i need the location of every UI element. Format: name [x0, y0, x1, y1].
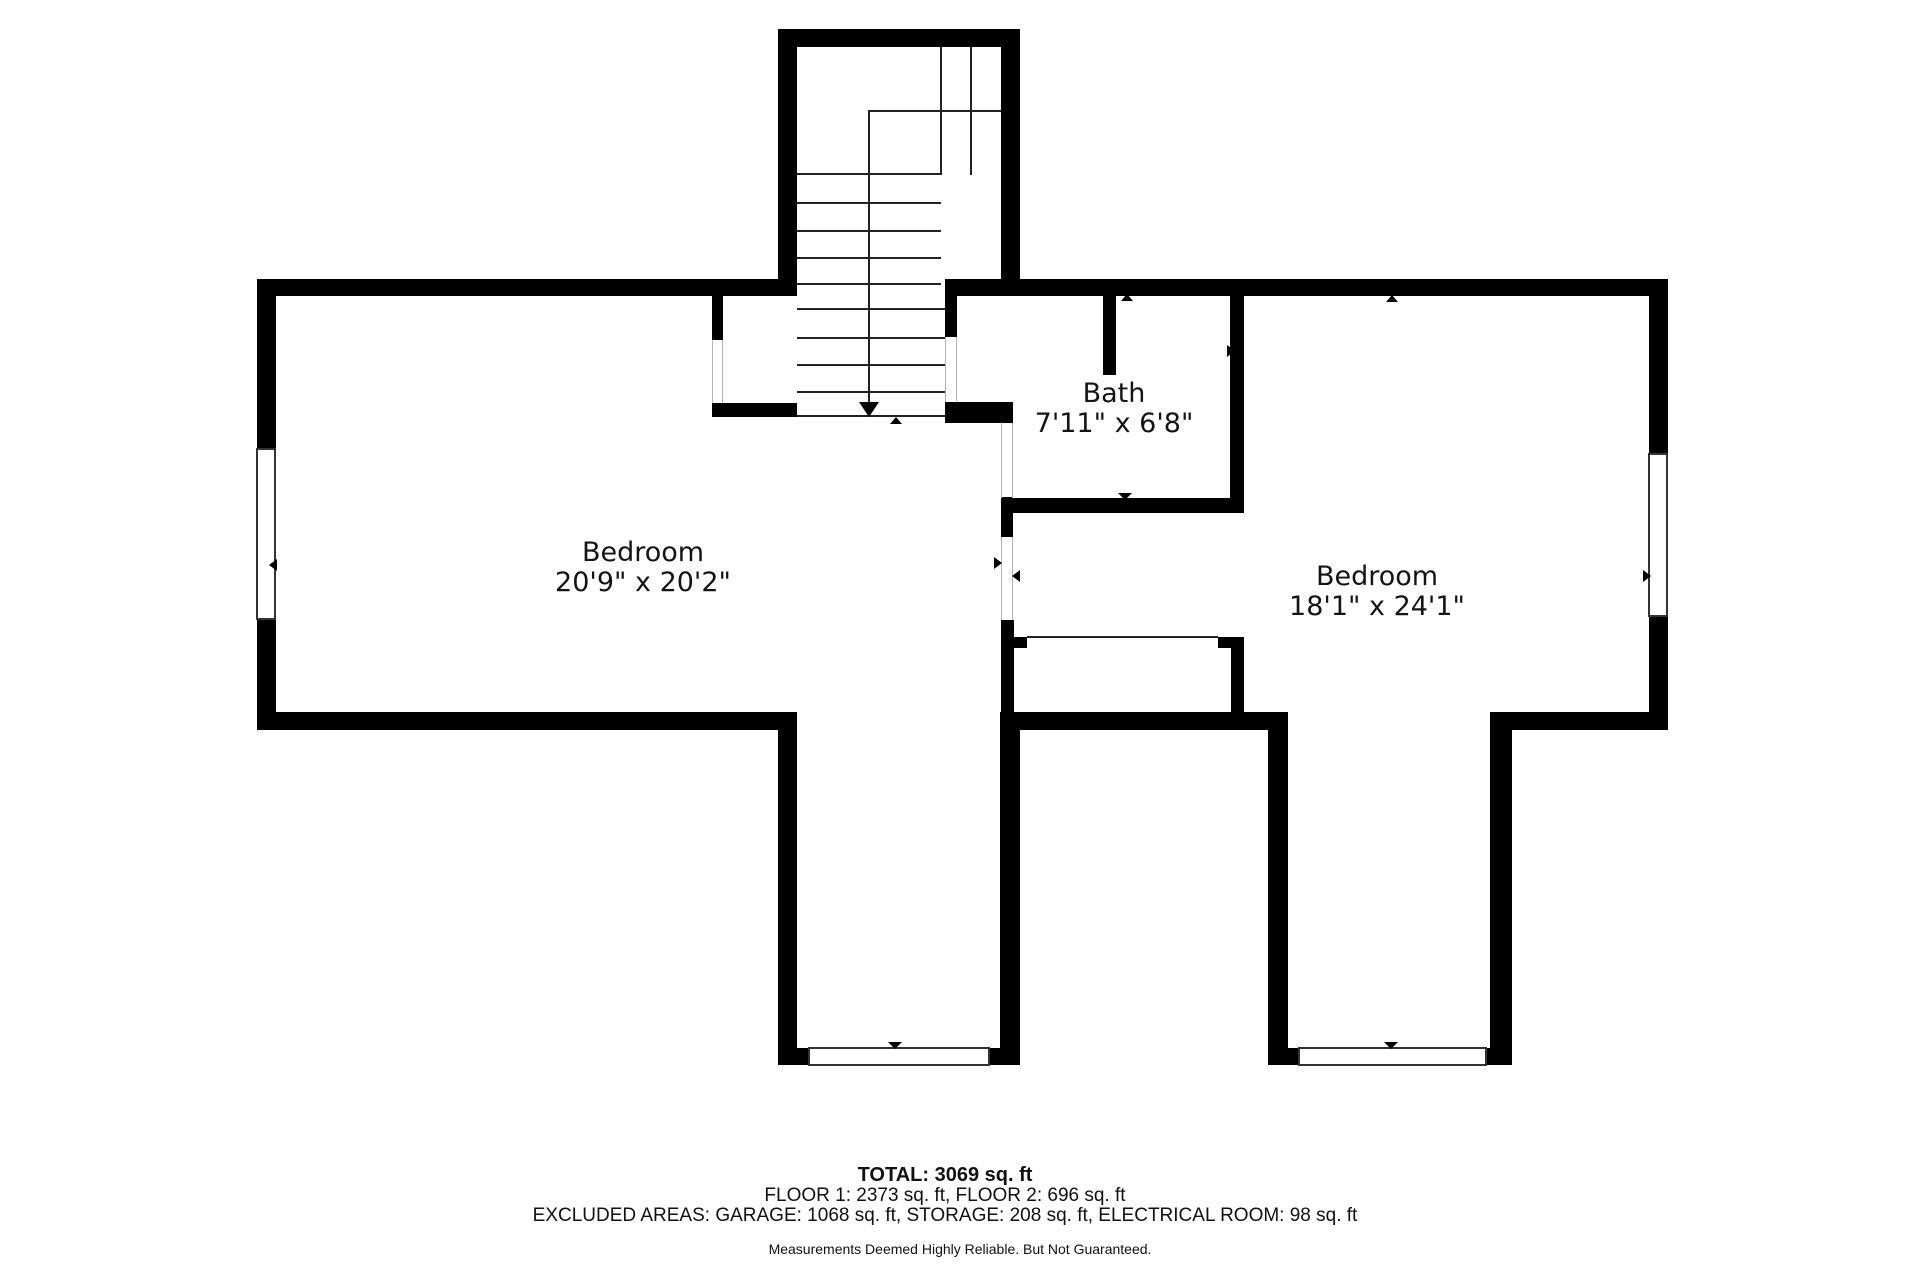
wall: [1490, 712, 1668, 730]
direction-arrow: [269, 559, 277, 571]
direction-arrow: [1118, 493, 1132, 500]
wall: [945, 279, 1668, 296]
direction-arrow: [888, 1042, 902, 1049]
door-opening: [1001, 537, 1002, 620]
direction-arrow: [1643, 570, 1651, 582]
wall: [1268, 712, 1288, 1065]
window: [1648, 453, 1668, 617]
floor-areas: FLOOR 1: 2373 sq. ft, FLOOR 2: 696 sq. f…: [0, 1186, 1890, 1206]
wall: [1013, 637, 1027, 648]
direction-arrow: [890, 417, 902, 424]
room-label-bedroom-right: Bedroom 18'1" x 24'1": [1289, 562, 1465, 622]
wall: [1000, 712, 1020, 1065]
wall: [1490, 712, 1512, 1065]
wall: [1001, 498, 1244, 513]
wall: [712, 403, 797, 417]
door-opening: [722, 340, 723, 403]
direction-arrow: [1227, 345, 1235, 357]
plan-line: [940, 47, 942, 175]
direction-arrow: [859, 402, 879, 417]
wall: [1001, 620, 1014, 712]
wall: [945, 296, 957, 337]
wall: [257, 279, 778, 296]
wall: [1103, 296, 1116, 375]
wall: [778, 29, 797, 296]
room-name: Bedroom: [555, 538, 731, 568]
excluded-areas: EXCLUDED AREAS: GARAGE: 1068 sq. ft, STO…: [0, 1206, 1890, 1226]
wall: [712, 296, 723, 340]
door-opening: [712, 340, 713, 403]
plan-line: [797, 337, 945, 339]
window: [256, 448, 276, 620]
wall: [989, 1048, 1020, 1065]
wall: [1231, 637, 1244, 730]
door-opening: [945, 337, 946, 402]
window: [808, 1047, 990, 1066]
floor-plan: Bedroom 20'9" x 20'2" Bath 7'11" x 6'8" …: [0, 0, 1920, 1280]
direction-arrow: [1384, 1042, 1398, 1049]
plan-line: [970, 47, 972, 175]
window: [1298, 1047, 1487, 1066]
plan-line: [1027, 636, 1218, 638]
plan-line: [797, 391, 945, 393]
wall: [1649, 279, 1668, 453]
wall: [1000, 712, 1288, 730]
total-area: TOTAL: 3069 sq. ft: [0, 1164, 1890, 1186]
direction-arrow: [1121, 294, 1133, 301]
door-opening: [956, 337, 957, 402]
room-dimensions: 20'9" x 20'2": [555, 568, 731, 598]
wall: [1218, 637, 1244, 648]
direction-arrow: [1012, 570, 1020, 582]
wall: [1230, 296, 1244, 513]
wall: [778, 1048, 809, 1065]
plan-line: [797, 364, 945, 366]
wall: [1001, 29, 1020, 296]
direction-arrow: [994, 557, 1002, 569]
plan-line: [868, 110, 870, 404]
room-label-bath: Bath 7'11" x 6'8": [1035, 379, 1194, 439]
room-name: Bath: [1035, 379, 1194, 409]
disclaimer-text: Measurements Deemed Highly Reliable. But…: [0, 1241, 1920, 1257]
wall: [778, 712, 797, 1065]
room-label-bedroom-left: Bedroom 20'9" x 20'2": [555, 538, 731, 598]
direction-arrow: [1386, 295, 1398, 302]
wall: [1268, 1048, 1299, 1065]
wall: [778, 29, 1020, 47]
wall: [257, 712, 797, 730]
door-opening: [1012, 423, 1013, 498]
room-dimensions: 18'1" x 24'1": [1289, 592, 1465, 622]
wall: [945, 402, 1013, 423]
plan-line: [797, 308, 945, 310]
area-statistics: TOTAL: 3069 sq. ft FLOOR 1: 2373 sq. ft,…: [0, 1164, 1890, 1226]
wall: [257, 279, 276, 448]
door-opening: [1001, 423, 1002, 498]
wall: [1486, 1048, 1512, 1065]
plan-line: [869, 110, 1001, 112]
room-dimensions: 7'11" x 6'8": [1035, 409, 1194, 439]
room-name: Bedroom: [1289, 562, 1465, 592]
